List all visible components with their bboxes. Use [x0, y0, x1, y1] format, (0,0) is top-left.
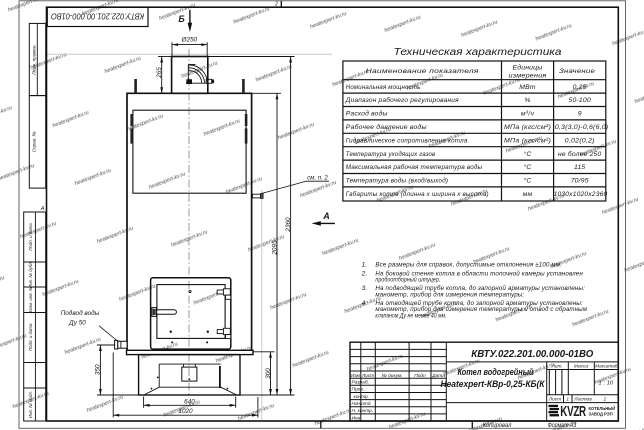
svg-text:Heatexpert-КВр-0,25-КБ(К: Heatexpert-КВр-0,25-КБ(К	[441, 379, 546, 389]
svg-text:°С: °С	[523, 177, 531, 185]
svg-text:Наименование показателя: Наименование показателя	[366, 68, 479, 75]
svg-text:Номинальная мощность: Номинальная мощность	[346, 84, 421, 91]
svg-text:Формат А3: Формат А3	[548, 423, 577, 429]
svg-text:манометр, прибор для измерения: манометр, прибор для измерения температу…	[375, 290, 524, 298]
svg-text:°С: °С	[523, 163, 531, 171]
svg-text:Масштаб: Масштаб	[595, 364, 618, 370]
svg-text:50-100: 50-100	[569, 97, 591, 104]
svg-text:Подп. и дата: Подп. и дата	[28, 323, 33, 351]
svg-text:2: 2	[274, 2, 278, 8]
svg-text:Подп. и дата: Подп. и дата	[28, 223, 33, 251]
svg-text:Б: Б	[178, 14, 185, 24]
svg-text:Котел водогрейный: Котел водогрейный	[458, 367, 534, 377]
svg-text:1 : 10: 1 : 10	[599, 381, 614, 387]
svg-text:4.: 4.	[362, 300, 368, 307]
svg-text:Копировал: Копировал	[483, 423, 512, 429]
svg-text:265: 265	[156, 67, 163, 79]
svg-text:Температура уходящих газов: Температура уходящих газов	[346, 150, 436, 158]
svg-text:Техническая характеристика: Техническая характеристика	[394, 47, 563, 58]
svg-text:Лист: Лист	[361, 373, 374, 379]
svg-text:А: А	[40, 206, 45, 212]
svg-text:Инв. № подл.: Инв. № подл.	[28, 391, 33, 418]
svg-text:Листов: Листов	[573, 397, 592, 403]
svg-text:1: 1	[566, 397, 569, 403]
svg-text:2.: 2.	[361, 270, 368, 277]
svg-text:ЗАВОД РЭП: ЗАВОД РЭП	[589, 411, 613, 416]
svg-text:мм: мм	[523, 191, 533, 198]
svg-text:Диапазон рабочего регулировани: Диапазон рабочего регулирования	[345, 96, 459, 104]
svg-text:Все размеры для справок, допус: Все размеры для справок, допустимые откл…	[375, 261, 562, 269]
svg-text:клапаном Ду не менее 40 мм.: клапаном Ду не менее 40 мм.	[375, 312, 446, 319]
svg-text:3.: 3.	[362, 285, 368, 292]
svg-text:KVZR: KVZR	[560, 403, 586, 420]
svg-text:Лит.: Лит.	[551, 364, 563, 370]
svg-text:м³/ч: м³/ч	[521, 111, 534, 118]
svg-text:пробоотборный штуцер.: пробоотборный штуцер.	[375, 275, 440, 283]
svg-text:2095: 2095	[271, 240, 278, 256]
svg-text:°С: °С	[523, 150, 531, 158]
svg-text:КВТУ.022.201.00.000-01ВО: КВТУ.022.201.00.000-01ВО	[471, 348, 593, 360]
svg-text:см. п. 2: см. п. 2	[307, 176, 328, 182]
svg-text:Дата: Дата	[431, 373, 445, 379]
svg-text:Инв. № дубл.: Инв. № дубл.	[28, 261, 33, 288]
svg-text:350: 350	[95, 364, 102, 375]
svg-text:МПа (кгс/см²): МПа (кгс/см²)	[504, 124, 551, 131]
svg-text:70/95: 70/95	[571, 178, 589, 185]
svg-text:1030х1020х2360: 1030х1020х2360	[554, 191, 608, 198]
svg-text:Ду 50: Ду 50	[68, 320, 86, 327]
svg-text:не более 250: не более 250	[558, 150, 602, 158]
svg-text:Взам. инв. №: Взам. инв. №	[28, 286, 33, 313]
svg-text:9: 9	[578, 111, 582, 118]
svg-text:Рабочее давление воды: Рабочее давление воды	[346, 123, 427, 131]
svg-text:Подп: Подп	[414, 373, 426, 379]
svg-text:Температура воды (вход/выход): Температура воды (вход/выход)	[346, 177, 448, 185]
svg-text:Изм: Изм	[351, 373, 361, 379]
svg-text:Инв: Инв	[352, 415, 361, 421]
svg-text:115: 115	[574, 164, 585, 171]
svg-text:Расход воды: Расход воды	[346, 110, 388, 118]
svg-text:Подвод воды: Подвод воды	[61, 309, 100, 317]
svg-text:Разраб.: Разраб.	[352, 380, 369, 386]
svg-text:Значение: Значение	[559, 68, 595, 75]
svg-text:0,25: 0,25	[573, 84, 587, 91]
svg-text:640: 640	[184, 398, 195, 405]
svg-text:№ докум.: № докум.	[382, 373, 403, 379]
svg-text:300: 300	[265, 368, 272, 379]
svg-text:Н. контр.: Н. контр.	[352, 408, 374, 414]
svg-text:Нач.отд.: Нач.отд.	[352, 401, 372, 407]
svg-text:Габариты котла (длинна х ширин: Габариты котла (длинна х ширина х высота…	[346, 190, 489, 198]
svg-text:1020: 1020	[178, 408, 193, 415]
svg-text:Гидравлическое сопротивление к: Гидравлическое сопротивление котла	[346, 136, 468, 144]
svg-text:КВТУ.022.201.00.000-01ВО: КВТУ.022.201.00.000-01ВО	[51, 12, 145, 21]
svg-text:2360: 2360	[285, 217, 292, 233]
svg-text:%: %	[524, 97, 530, 104]
svg-text:2: 2	[603, 397, 607, 403]
svg-text:Масса: Масса	[574, 364, 589, 370]
svg-text:Единицы: Единицы	[513, 64, 543, 72]
svg-text:А: А	[322, 211, 330, 221]
svg-text:контр.: контр.	[354, 395, 370, 400]
svg-text:Пров.: Пров.	[352, 387, 365, 393]
svg-text:0,02(0,2): 0,02(0,2)	[565, 137, 595, 144]
svg-text:МПа (кгс/см²): МПа (кгс/см²)	[504, 137, 551, 144]
svg-text:Ø250: Ø250	[180, 37, 197, 44]
svg-text:измерения: измерения	[509, 72, 547, 79]
svg-text:Перв. примен.: Перв. примен.	[32, 44, 37, 75]
svg-text:Справ. №: Справ. №	[32, 131, 37, 152]
svg-text:КОТЕЛЬНЫЙ: КОТЕЛЬНЫЙ	[589, 406, 616, 411]
svg-text:МВт: МВт	[519, 84, 536, 91]
svg-text:1.: 1.	[362, 262, 368, 269]
svg-text:0,3(3,0)-0,6(6,0): 0,3(3,0)-0,6(6,0)	[555, 124, 608, 131]
svg-text:Лист: Лист	[548, 397, 561, 403]
svg-text:Максимальная рабочая температу: Максимальная рабочая температура воды	[346, 163, 483, 171]
